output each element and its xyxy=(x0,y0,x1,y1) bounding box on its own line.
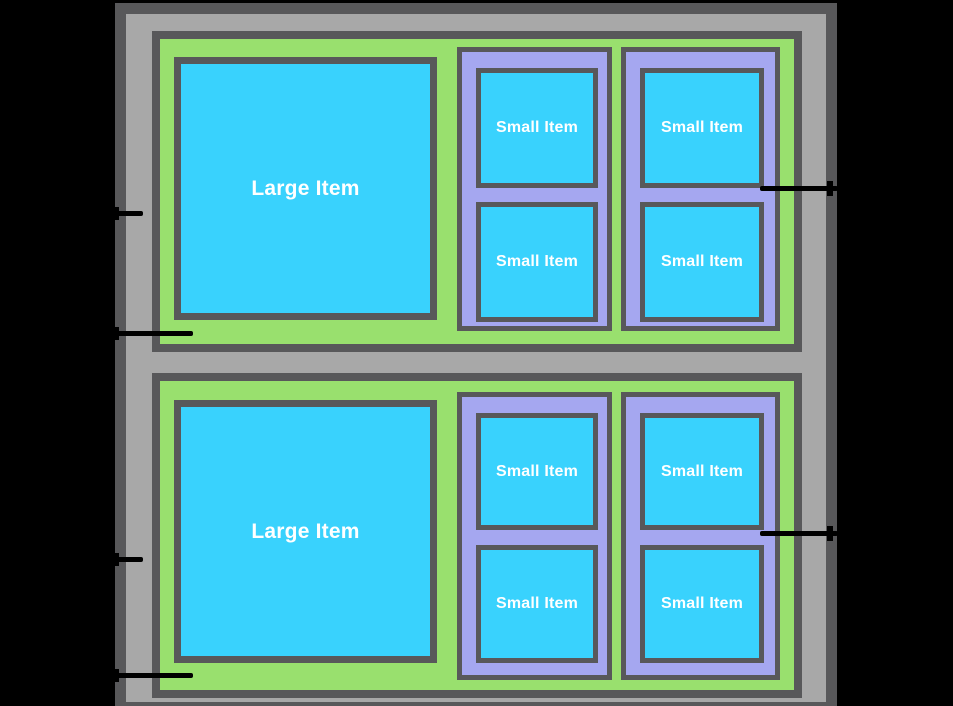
small-item-label: Small Item xyxy=(661,253,743,271)
annotation-cap-right-2 xyxy=(827,526,833,541)
small-item-label: Small Item xyxy=(496,595,578,613)
annotation-cap-left-4 xyxy=(113,669,119,682)
annotation-cap-right-1 xyxy=(827,181,833,196)
small-item-label: Small Item xyxy=(661,463,743,481)
small-item: Small Item xyxy=(476,68,598,188)
annotation-line-left-3 xyxy=(95,557,143,562)
large-item-label: Large Item xyxy=(251,177,359,201)
small-item: Small Item xyxy=(476,545,598,663)
small-item-column: Small Item Small Item xyxy=(621,392,780,680)
annotation-cap-left-2 xyxy=(113,327,119,340)
panel-top: Large Item Small Item Small Item Small I… xyxy=(152,31,802,352)
annotation-line-left-2 xyxy=(95,331,193,336)
small-item-label: Small Item xyxy=(496,253,578,271)
panel-bottom: Large Item Small Item Small Item Small I… xyxy=(152,373,802,698)
annotation-line-left-4 xyxy=(95,673,193,678)
annotation-cap-left-3 xyxy=(113,553,119,566)
small-item-label: Small Item xyxy=(661,119,743,137)
small-item-column: Small Item Small Item xyxy=(621,47,780,331)
annotation-line-left-1 xyxy=(95,211,143,216)
small-item: Small Item xyxy=(476,413,598,530)
small-item: Small Item xyxy=(640,202,764,322)
large-item-label: Large Item xyxy=(251,520,359,544)
small-item-column: Small Item Small Item xyxy=(457,47,612,331)
small-item-label: Small Item xyxy=(496,119,578,137)
layout-diagram: Large Item Small Item Small Item Small I… xyxy=(0,0,953,706)
small-item-label: Small Item xyxy=(661,595,743,613)
small-item-column: Small Item Small Item xyxy=(457,392,612,680)
small-item: Small Item xyxy=(640,545,764,663)
small-item: Small Item xyxy=(476,202,598,322)
annotation-cap-left-1 xyxy=(113,207,119,220)
large-item: Large Item xyxy=(174,57,437,320)
small-item-label: Small Item xyxy=(496,463,578,481)
small-item: Small Item xyxy=(640,68,764,188)
small-item: Small Item xyxy=(640,413,764,530)
large-item: Large Item xyxy=(174,400,437,663)
